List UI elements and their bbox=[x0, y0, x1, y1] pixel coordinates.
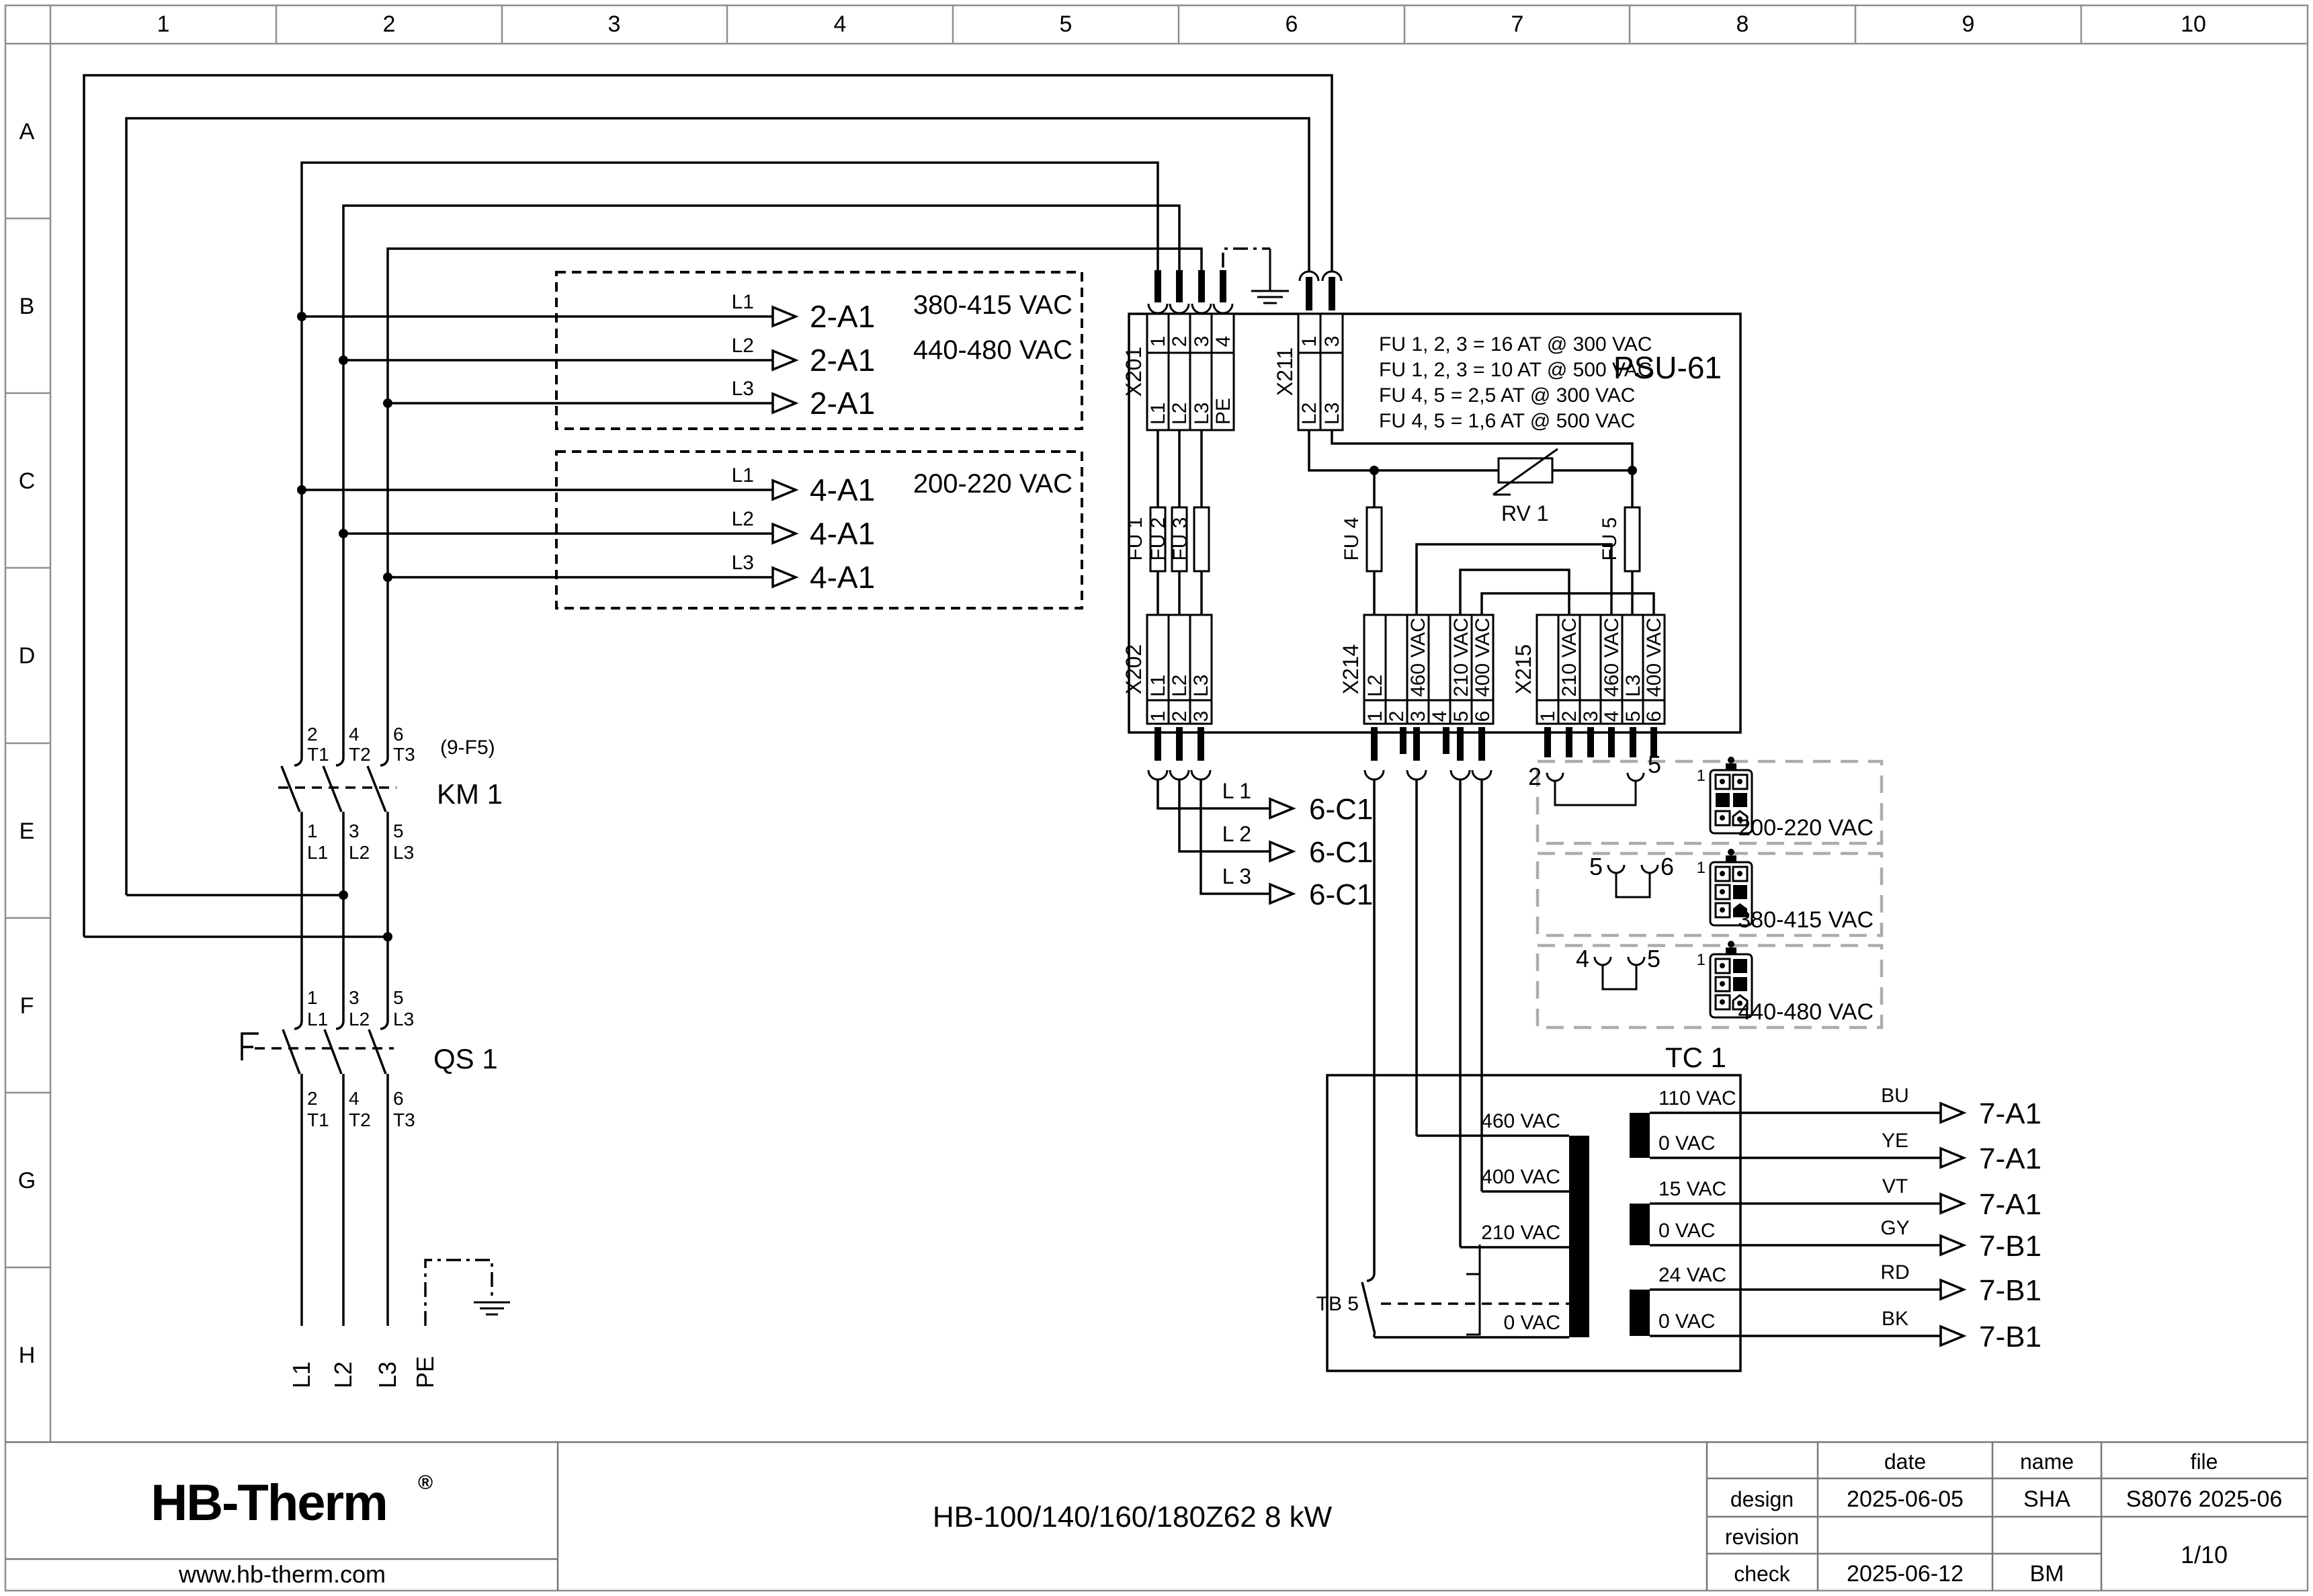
row-label: D bbox=[19, 643, 36, 669]
pin-number: 3 bbox=[1190, 711, 1212, 722]
tb-design-name: SHA bbox=[2023, 1486, 2070, 1512]
terminal-label: PE bbox=[1212, 398, 1234, 425]
terminal-label: L2 bbox=[1298, 403, 1320, 425]
phase-label: PE bbox=[411, 1356, 439, 1388]
connector-pin1-label: 1 bbox=[1697, 767, 1706, 785]
row-label: B bbox=[19, 294, 35, 319]
fuse-label: FU 4 bbox=[1341, 517, 1363, 560]
cross-reference: (9-F5) bbox=[440, 737, 495, 759]
disconnect-qs1: 1 3 5 L1 L2 L3 2 4 6 T1 T2 T3 QS 1 bbox=[242, 987, 498, 1326]
jumper-pin: 4 bbox=[1576, 945, 1589, 972]
pin-number: 3 bbox=[1580, 711, 1602, 722]
tb-header-file: file bbox=[2191, 1450, 2218, 1474]
pin-number: 2 bbox=[1169, 711, 1191, 722]
terminal-label: L2 bbox=[1169, 675, 1191, 697]
secondary-tap: 0 VAC bbox=[1658, 1310, 1715, 1333]
pin-number: 2 bbox=[307, 1088, 318, 1109]
connector-pin1-label: 1 bbox=[1697, 859, 1706, 877]
jumper-pin: 5 bbox=[1647, 945, 1660, 972]
jumper-pin: 5 bbox=[1648, 751, 1661, 778]
pin-number: 5 bbox=[1450, 711, 1472, 722]
row-label: H bbox=[19, 1343, 36, 1368]
option-voltage: 440-480 VAC bbox=[1738, 999, 1874, 1025]
schematic-sheet: 1 2 3 4 5 6 7 8 9 10 A B C D E F G H bbox=[0, 0, 2313, 1596]
line-label: L 1 bbox=[1222, 779, 1251, 803]
option-voltage: 200-220 VAC bbox=[1738, 815, 1874, 841]
block-name: X211 bbox=[1273, 347, 1297, 396]
terminal-label: T2 bbox=[349, 744, 371, 765]
wire-target: 6-C1 bbox=[1309, 793, 1373, 826]
pin-number: 1 bbox=[1147, 711, 1169, 722]
pin-number: 3 bbox=[349, 821, 360, 841]
line-label: L2 bbox=[732, 335, 754, 357]
pin-number: 1 bbox=[307, 987, 318, 1008]
line-label: L1 bbox=[732, 464, 754, 487]
wire-target: 6-C1 bbox=[1309, 878, 1373, 911]
logo-text: HB-Therm bbox=[151, 1474, 386, 1531]
secondary-tap: 110 VAC bbox=[1658, 1087, 1736, 1109]
pin-number: 1 bbox=[1537, 711, 1559, 722]
wire-target: 2-A1 bbox=[810, 343, 875, 378]
wire-color: BK bbox=[1882, 1308, 1908, 1330]
feed-box-2a1: L1 L2 L3 2-A1 2-A1 2-A1 380-415 VAC 440-… bbox=[297, 272, 1082, 429]
pin-number: 3 bbox=[349, 987, 360, 1008]
tb-header-name: name bbox=[2020, 1450, 2074, 1474]
terminal-block-x215: 210 VAC 460 VAC L3 400 VAC 1 2 3 4 5 6 X… bbox=[1511, 615, 1665, 724]
pin-number: 2 bbox=[1169, 336, 1191, 347]
secondary-tap: 0 VAC bbox=[1658, 1132, 1715, 1154]
registered-mark: ® bbox=[418, 1472, 433, 1494]
varistor-label: RV 1 bbox=[1501, 501, 1549, 526]
secondary-tap: 15 VAC bbox=[1658, 1178, 1726, 1200]
fuse-label: FU 5 bbox=[1599, 517, 1621, 560]
phase-label: L3 bbox=[374, 1361, 401, 1388]
tb-page-number: 1/10 bbox=[2181, 1541, 2228, 1568]
fuse-label: FU 2 bbox=[1147, 517, 1169, 560]
wire-target: 2-A1 bbox=[810, 386, 875, 421]
fuses: FU 1 FU 2 FU 3 FU 4 FU 5 bbox=[1124, 507, 1640, 571]
terminal-label: 400 VAC bbox=[1472, 618, 1494, 697]
wire-target: 2-A1 bbox=[810, 299, 875, 334]
fuse-note: FU 4, 5 = 1,6 AT @ 500 VAC bbox=[1379, 410, 1635, 432]
fuse-note: FU 1, 2, 3 = 16 AT @ 300 VAC bbox=[1379, 333, 1652, 355]
terminal-label: L3 bbox=[393, 842, 414, 863]
wire-color: GY bbox=[1880, 1217, 1909, 1239]
column-ticks bbox=[276, 5, 2081, 44]
primary-tap: 210 VAC bbox=[1481, 1222, 1560, 1244]
column-labels: 1 2 3 4 5 6 7 8 9 10 bbox=[157, 11, 2206, 37]
col-label: 10 bbox=[2181, 11, 2206, 37]
pin-number: 6 bbox=[1643, 711, 1665, 722]
phase-label: L2 bbox=[329, 1361, 357, 1388]
pin-number: 6 bbox=[393, 724, 404, 745]
transformer-tc1: TC 1 TB 5 460 VAC 400 VAC 210 VAC 0 VAC bbox=[1316, 780, 2042, 1371]
wire-target: 6-C1 bbox=[1309, 836, 1373, 869]
terminal-label: T1 bbox=[307, 1109, 329, 1130]
pin-number: 1 bbox=[1298, 336, 1320, 347]
terminal-label: L2 bbox=[349, 1009, 370, 1030]
device-label: TC 1 bbox=[1665, 1042, 1726, 1073]
tb-design-date: 2025-06-05 bbox=[1847, 1486, 1964, 1512]
row-ticks bbox=[5, 218, 50, 1267]
terminal-block-x201: 1 2 3 4 L1 L2 L3 PE X201 bbox=[1122, 314, 1234, 430]
terminal-label: L1 bbox=[307, 842, 328, 863]
terminal-label: T2 bbox=[349, 1109, 371, 1130]
col-label: 9 bbox=[1962, 11, 1975, 37]
pin-number: 1 bbox=[307, 821, 318, 841]
terminal-block-x211: 1 3 L2 L3 X211 bbox=[1273, 314, 1343, 430]
tb-design-label: design bbox=[1730, 1487, 1794, 1511]
terminal-block-x214: L2 460 VAC 210 VAC 400 VAC 1 2 3 4 5 6 X… bbox=[1339, 615, 1494, 724]
wire-target: 4-A1 bbox=[810, 516, 875, 551]
wire-target: 7-A1 bbox=[1979, 1097, 2042, 1130]
fuse-note: FU 4, 5 = 2,5 AT @ 300 VAC bbox=[1379, 384, 1635, 407]
terminal-label: 210 VAC bbox=[1558, 618, 1581, 697]
wire-target: 4-A1 bbox=[810, 560, 875, 595]
pin-number: 3 bbox=[1191, 336, 1213, 347]
psu-pe-ground bbox=[1223, 249, 1289, 303]
sheet-border: 1 2 3 4 5 6 7 8 9 10 A B C D E F G H bbox=[5, 5, 2308, 1591]
pin-number: 2 bbox=[1386, 711, 1408, 722]
terminal-label: L3 bbox=[1190, 675, 1212, 697]
col-label: 2 bbox=[383, 11, 396, 37]
terminal-label: L3 bbox=[1321, 403, 1343, 425]
terminal-label: L2 bbox=[1169, 403, 1191, 425]
col-label: 3 bbox=[608, 11, 621, 37]
line-label: L 2 bbox=[1222, 822, 1251, 846]
pin-number: 6 bbox=[393, 1088, 404, 1109]
device-label: QS 1 bbox=[433, 1043, 498, 1075]
mains-bus-wiring bbox=[84, 75, 1332, 941]
line-label: L1 bbox=[732, 291, 754, 313]
feed-box-4a1: L1 L2 L3 4-A1 4-A1 4-A1 200-220 VAC bbox=[297, 452, 1082, 608]
company-logo: HB-Therm ® bbox=[151, 1472, 433, 1531]
col-label: 1 bbox=[157, 11, 170, 37]
terminal-label: 400 VAC bbox=[1643, 618, 1665, 697]
varistor-rv1: RV 1 bbox=[1493, 449, 1558, 526]
pin-number: 5 bbox=[393, 987, 404, 1008]
wire-target: 4-A1 bbox=[810, 472, 875, 507]
fuse-label: FU 1 bbox=[1124, 517, 1146, 560]
jumper-pin: 2 bbox=[1528, 763, 1542, 790]
terminal-label: 210 VAC bbox=[1450, 618, 1472, 697]
wire-target: 7-B1 bbox=[1979, 1320, 2042, 1353]
primary-tap: 0 VAC bbox=[1504, 1312, 1560, 1334]
pin-number: 2 bbox=[307, 724, 318, 745]
terminal-label: 460 VAC bbox=[1601, 618, 1623, 697]
pin-number: 5 bbox=[393, 821, 404, 841]
jumper-pin: 5 bbox=[1589, 853, 1603, 880]
terminal-label: L2 bbox=[349, 842, 370, 863]
line-label: L3 bbox=[732, 552, 754, 574]
terminal-label: T3 bbox=[393, 744, 415, 765]
drawing-title: HB-100/140/160/180Z62 8 kW bbox=[933, 1501, 1333, 1534]
line-label: L2 bbox=[732, 508, 754, 530]
line-label: L 3 bbox=[1222, 864, 1251, 888]
block-name: X214 bbox=[1339, 644, 1363, 695]
terminal-label: L1 bbox=[1147, 403, 1169, 425]
primary-tap: 460 VAC bbox=[1481, 1110, 1560, 1132]
thermal-label: TB 5 bbox=[1316, 1293, 1359, 1315]
row-label: G bbox=[18, 1168, 36, 1193]
fuse-label: FU 3 bbox=[1169, 517, 1191, 560]
primary-tap: 400 VAC bbox=[1481, 1166, 1560, 1188]
wire-target: 7-B1 bbox=[1979, 1274, 2042, 1307]
pin-number: 3 bbox=[1321, 336, 1343, 347]
contactor-km1: 2 4 6 T1 T2 T3 1 3 5 L1 L2 L3 (9-F5) KM … bbox=[278, 724, 503, 1021]
pin-number: 1 bbox=[1364, 711, 1386, 722]
block-name: X215 bbox=[1511, 644, 1536, 695]
terminal-label: 460 VAC bbox=[1407, 618, 1429, 697]
phase-label: L1 bbox=[288, 1361, 315, 1388]
tb-check-name: BM bbox=[2030, 1561, 2064, 1587]
terminal-label: T3 bbox=[393, 1109, 415, 1130]
voltage-range: 200-220 VAC bbox=[913, 469, 1073, 499]
tb-file-value: S8076 2025-06 bbox=[2126, 1486, 2283, 1512]
wire-target: 7-A1 bbox=[1979, 1188, 2042, 1221]
psu-internal-wiring bbox=[1158, 430, 1654, 615]
block-name: X202 bbox=[1122, 644, 1146, 695]
block-name: X201 bbox=[1122, 347, 1146, 397]
terminal-label: L3 bbox=[1622, 675, 1644, 697]
wire-target: 7-A1 bbox=[1979, 1142, 2042, 1175]
wire-color: VT bbox=[1882, 1175, 1908, 1198]
company-website: www.hb-therm.com bbox=[178, 1560, 386, 1588]
col-label: 8 bbox=[1736, 11, 1749, 37]
connector-pin1-label: 1 bbox=[1697, 951, 1706, 969]
row-label: E bbox=[19, 818, 35, 844]
option-voltage: 380-415 VAC bbox=[1738, 907, 1874, 933]
terminal-label: L3 bbox=[1191, 403, 1213, 425]
wire-color: YE bbox=[1882, 1130, 1908, 1152]
pin-number: 1 bbox=[1147, 336, 1169, 347]
psu-61-module: PSU-61 FU 1, 2, 3 = 16 AT @ 300 VAC FU 1… bbox=[1122, 314, 1740, 732]
row-label: A bbox=[19, 119, 35, 144]
jumper-pin: 6 bbox=[1660, 853, 1674, 880]
tb-revision-label: revision bbox=[1725, 1525, 1799, 1549]
col-label: 4 bbox=[834, 11, 847, 37]
col-label: 5 bbox=[1060, 11, 1073, 37]
tb-check-label: check bbox=[1734, 1562, 1791, 1586]
terminal-label: L2 bbox=[1364, 675, 1386, 697]
pin-number: 6 bbox=[1472, 711, 1494, 722]
secondary-tap: 24 VAC bbox=[1658, 1264, 1726, 1286]
pe-ground bbox=[425, 1260, 510, 1326]
voltage-range: 380-415 VAC bbox=[913, 290, 1073, 320]
mains-entry: L1 L2 L3 PE bbox=[288, 1260, 510, 1388]
pin-number: 4 bbox=[349, 724, 360, 745]
pin-number: 4 bbox=[1212, 336, 1234, 347]
col-label: 6 bbox=[1286, 11, 1298, 37]
wire-color: BU bbox=[1881, 1085, 1909, 1107]
terminal-label: L1 bbox=[307, 1009, 328, 1030]
fuse-note: FU 1, 2, 3 = 10 AT @ 500 VAC bbox=[1379, 359, 1652, 381]
voltage-range: 440-480 VAC bbox=[913, 335, 1073, 365]
terminal-label: T1 bbox=[307, 744, 329, 765]
tb-header-date: date bbox=[1884, 1450, 1926, 1474]
pin-number: 4 bbox=[1429, 711, 1451, 722]
row-label: F bbox=[20, 993, 34, 1019]
secondary-tap: 0 VAC bbox=[1658, 1220, 1715, 1242]
device-label: KM 1 bbox=[437, 778, 503, 810]
pin-number: 4 bbox=[349, 1088, 360, 1109]
pin-number: 5 bbox=[1622, 711, 1644, 722]
tb-check-date: 2025-06-12 bbox=[1847, 1561, 1964, 1587]
pin-number: 2 bbox=[1558, 711, 1581, 722]
wire-target: 7-B1 bbox=[1979, 1230, 2042, 1263]
terminal-label: L1 bbox=[1147, 675, 1169, 697]
line-label: L3 bbox=[732, 378, 754, 400]
terminal-block-x202: L1 L2 L3 1 2 3 X202 bbox=[1122, 615, 1212, 724]
pin-number: 3 bbox=[1407, 711, 1429, 722]
terminal-label: L3 bbox=[393, 1009, 414, 1030]
pin-number: 4 bbox=[1601, 711, 1623, 722]
feed-6c1: L 1 L 2 L 3 6-C1 6-C1 6-C1 bbox=[1158, 779, 1373, 911]
row-label: C bbox=[19, 468, 36, 494]
wire-color: RD bbox=[1880, 1261, 1909, 1284]
voltage-options: 2 5 5 6 4 5 1 1 bbox=[1528, 751, 1882, 1027]
title-block: HB-Therm ® www.hb-therm.com HB-100/140/1… bbox=[5, 1442, 2308, 1591]
col-label: 7 bbox=[1511, 11, 1524, 37]
